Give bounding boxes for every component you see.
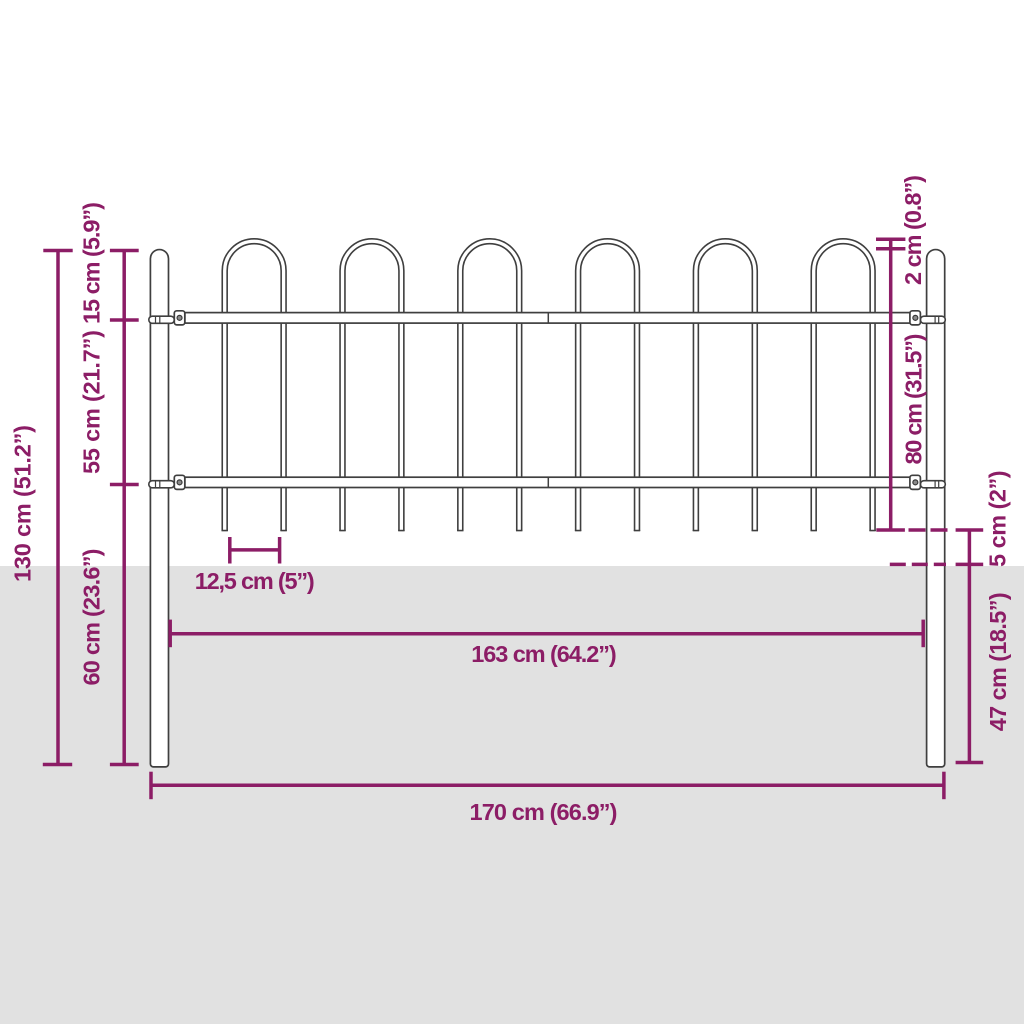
svg-text:12,5 cm (5”): 12,5 cm (5”)	[195, 568, 315, 594]
svg-text:47 cm (18.5”): 47 cm (18.5”)	[985, 592, 1011, 731]
svg-text:130 cm (51.2”): 130 cm (51.2”)	[10, 425, 36, 582]
svg-text:163 cm (64.2”): 163 cm (64.2”)	[471, 641, 617, 667]
svg-text:170 cm (66.9”): 170 cm (66.9”)	[470, 799, 618, 825]
svg-text:60 cm (23.6”): 60 cm (23.6”)	[79, 549, 105, 686]
svg-text:5 cm (2”): 5 cm (2”)	[985, 470, 1011, 566]
svg-text:15 cm (5.9”): 15 cm (5.9”)	[79, 202, 105, 324]
svg-text:55 cm (21.7”): 55 cm (21.7”)	[79, 330, 105, 474]
svg-text:80 cm (31.5”): 80 cm (31.5”)	[901, 334, 927, 465]
svg-text:2 cm (0.8”): 2 cm (0.8”)	[900, 175, 926, 285]
